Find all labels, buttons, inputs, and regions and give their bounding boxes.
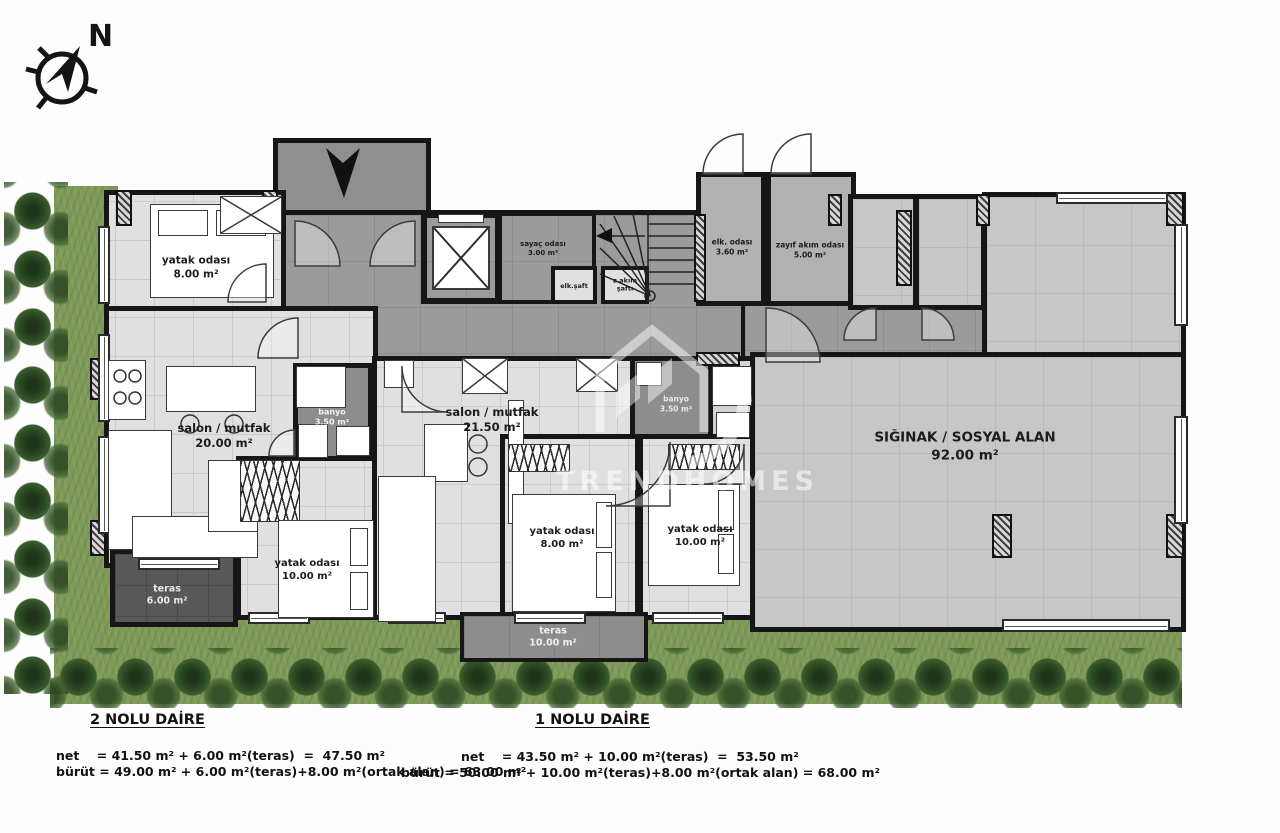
furniture-wardrobe-x — [576, 358, 618, 392]
window — [1002, 619, 1170, 632]
column — [976, 194, 990, 226]
furniture-pillow — [350, 572, 368, 610]
column — [694, 214, 706, 302]
room-name: elk.şaft — [560, 282, 588, 290]
compass-north-label: N — [88, 19, 113, 54]
furniture-pillow — [596, 502, 612, 548]
window — [514, 612, 586, 624]
window — [1174, 416, 1188, 524]
furniture-stove — [108, 360, 146, 420]
room-name: teras — [529, 626, 576, 638]
room-area: 8.00 m² — [529, 538, 594, 551]
furniture-wardrobe-x — [220, 196, 282, 234]
compass-needle — [46, 46, 80, 92]
room-name: banyo — [315, 408, 349, 418]
door-arc — [771, 134, 811, 174]
room-area: 3.50 m² — [660, 404, 692, 414]
room-area: 10.00 m² — [529, 638, 576, 650]
room-name: z.akım — [613, 277, 637, 285]
furniture-sink — [336, 426, 370, 456]
room-area: 92.00 m² — [874, 447, 1055, 465]
column — [1166, 192, 1184, 226]
furniture-sink — [384, 360, 414, 388]
label-low-current-room: zayıf akım odası 5.00 m² — [776, 240, 844, 260]
column — [828, 194, 842, 226]
apt2-net: net = 41.50 m² + 6.00 m²(teras) = 47.50 … — [56, 748, 385, 763]
label-bathroom-left: banyo 3.50 m² — [315, 408, 349, 429]
label-electric-shaft: elk.şaft — [560, 282, 588, 290]
column — [116, 190, 132, 226]
room-area: 5.00 m² — [776, 250, 844, 260]
label-bedroom-left: yatak odası 10.00 m² — [274, 557, 339, 583]
tree-row-left — [4, 182, 68, 694]
furniture-wc — [298, 424, 328, 458]
room-name: SIĞINAK / SOSYAL ALAN — [874, 429, 1055, 447]
room-name: teras — [147, 584, 188, 596]
room-name: yatak odası — [162, 254, 230, 268]
room-name: banyo — [660, 394, 692, 404]
furniture-pillow — [350, 528, 368, 566]
label-bedroom-right: yatak odası 10.00 m² — [667, 523, 732, 549]
room-name: şaftı — [613, 285, 637, 293]
column — [992, 514, 1012, 558]
room-name: sayaç odası — [520, 240, 566, 249]
apt1-brut: bürüt = 50.00 m² + 10.00 m²(teras)+8.00 … — [401, 765, 880, 780]
label-shelter: SIĞINAK / SOSYAL ALAN 92.00 m² — [874, 429, 1055, 464]
apt1-title: 1 NOLU DAİRE — [535, 712, 650, 728]
furniture-shower — [712, 366, 752, 406]
label-terrace-left: teras 6.00 m² — [147, 584, 188, 609]
label-meter-room: sayaç odası 3.00 m² — [520, 240, 566, 258]
furniture-shower — [296, 366, 346, 408]
room-shelter-upper — [982, 192, 1186, 364]
furniture-pillow — [158, 210, 208, 236]
room-area: 3.00 m² — [520, 249, 566, 258]
furniture-pillow — [596, 552, 612, 598]
room-area: 6.00 m² — [147, 596, 188, 608]
room-area: 3.60 m² — [712, 247, 753, 257]
room-low-current — [766, 172, 856, 306]
room-area: 10.00 m² — [667, 536, 732, 549]
window — [138, 558, 220, 570]
apt1-net: net = 43.50 m² + 10.00 m²(teras) = 53.50… — [461, 749, 799, 764]
door-arc — [703, 134, 743, 174]
room-name: yatak odası — [667, 523, 732, 536]
room-name: yatak odası — [274, 557, 339, 570]
watermark-text: TRENDHOMES — [556, 466, 819, 497]
elevator-door — [438, 214, 484, 223]
room-name: elk. odası — [712, 237, 753, 247]
compass: N — [26, 19, 113, 108]
label-low-current-shaft: z.akım şaftı — [613, 277, 637, 294]
floor-plan-page: N — [0, 0, 1280, 833]
label-living-kitchen-left: salon / mutfak 20.00 m² — [178, 421, 271, 451]
room-name: yatak odası — [529, 525, 594, 538]
elevator-car — [432, 226, 490, 290]
window — [652, 612, 724, 624]
furniture-sofa — [378, 476, 436, 622]
column — [896, 210, 912, 286]
furniture-wc — [716, 412, 750, 438]
label-living-kitchen-mid: salon / mutfak 21.50 m² — [446, 405, 539, 435]
label-bedroom-mid: yatak odası 8.00 m² — [529, 525, 594, 551]
room-area: 20.00 m² — [178, 436, 271, 451]
room-name: salon / mutfak — [178, 421, 271, 436]
apt2-title: 2 NOLU DAİRE — [90, 712, 205, 728]
room-area: 10.00 m² — [274, 570, 339, 583]
window — [98, 226, 110, 304]
room-name: salon / mutfak — [446, 405, 539, 420]
label-terrace-mid: teras 10.00 m² — [529, 626, 576, 651]
furniture-wardrobe — [240, 460, 300, 522]
furniture-wardrobe-x — [462, 358, 508, 394]
room-area: 3.50 m² — [315, 418, 349, 428]
label-bedroom-top-left: yatak odası 8.00 m² — [162, 254, 230, 281]
furniture-kitchen-island — [166, 366, 256, 412]
entrance-block — [273, 138, 431, 218]
column — [696, 352, 740, 366]
furniture-sink — [636, 362, 662, 386]
window — [1056, 192, 1168, 204]
label-electric-room: elk. odası 3.60 m² — [712, 237, 753, 257]
window — [1174, 224, 1188, 326]
room-area: 8.00 m² — [162, 268, 230, 282]
label-bathroom-mid: banyo 3.50 m² — [660, 394, 692, 414]
room-area: 21.50 m² — [446, 420, 539, 435]
room-name: zayıf akım odası — [776, 240, 844, 250]
